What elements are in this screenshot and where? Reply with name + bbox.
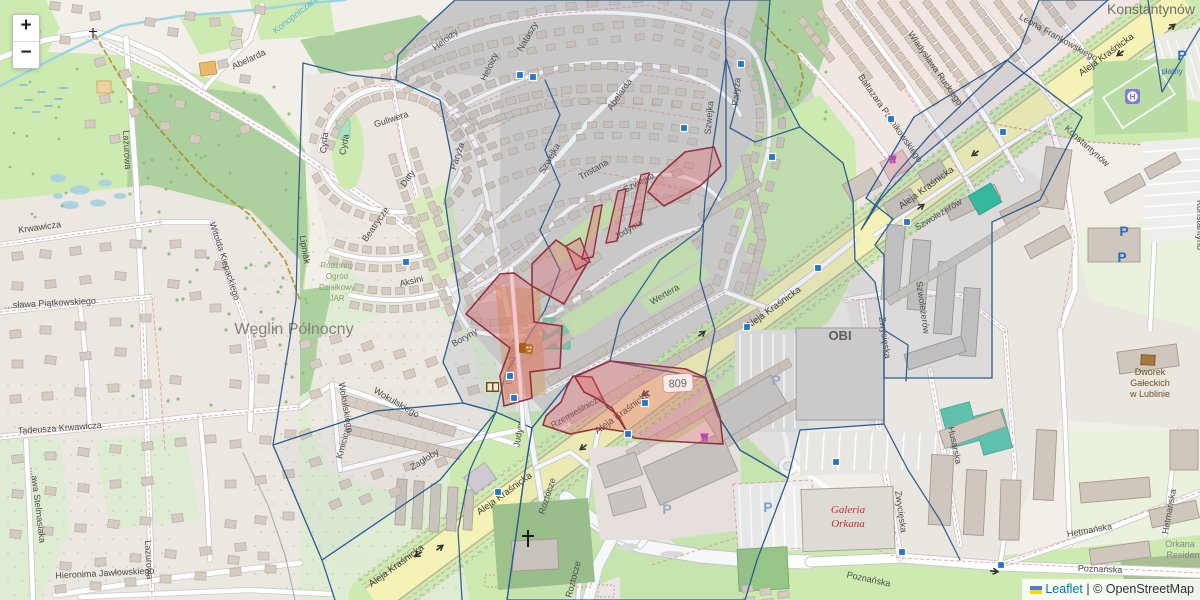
svg-text:P: P [1119, 223, 1128, 239]
svg-text:P: P [662, 501, 671, 517]
svg-text:Galeria: Galeria [831, 504, 866, 516]
svg-text:w Lublinie: w Lublinie [1129, 389, 1170, 399]
svg-text:Gałeckich: Gałeckich [1130, 378, 1170, 388]
svg-text:P: P [1177, 47, 1186, 63]
svg-text:Orkana: Orkana [831, 518, 865, 530]
svg-text:Lazurowa: Lazurowa [121, 130, 133, 170]
svg-text:809: 809 [668, 378, 687, 391]
svg-text:Rodzinny: Rodzinny [320, 261, 353, 270]
svg-text:Ogród: Ogród [326, 272, 348, 281]
svg-text:Działkowy: Działkowy [319, 283, 355, 292]
svg-text:Konstantynów: Konstantynów [1107, 1, 1196, 17]
svg-text:Poznańska: Poznańska [1078, 563, 1123, 575]
svg-text:Cyda: Cyda [318, 132, 330, 154]
svg-text:Dworek: Dworek [1135, 367, 1166, 377]
svg-text:płatny: płatny [1161, 67, 1182, 76]
svg-text:P: P [1117, 249, 1126, 265]
svg-text:Orkana: Orkana [1165, 539, 1195, 549]
svg-text:JAR: JAR [329, 294, 344, 303]
svg-text:Residen: Residen [1166, 550, 1199, 560]
svg-text:H: H [1130, 93, 1136, 102]
svg-text:Konstantynó: Konstantynó [1195, 200, 1200, 250]
svg-text:Węglin Północny: Węglin Północny [234, 321, 353, 338]
svg-text:P: P [771, 372, 780, 388]
svg-text:P: P [763, 499, 772, 515]
